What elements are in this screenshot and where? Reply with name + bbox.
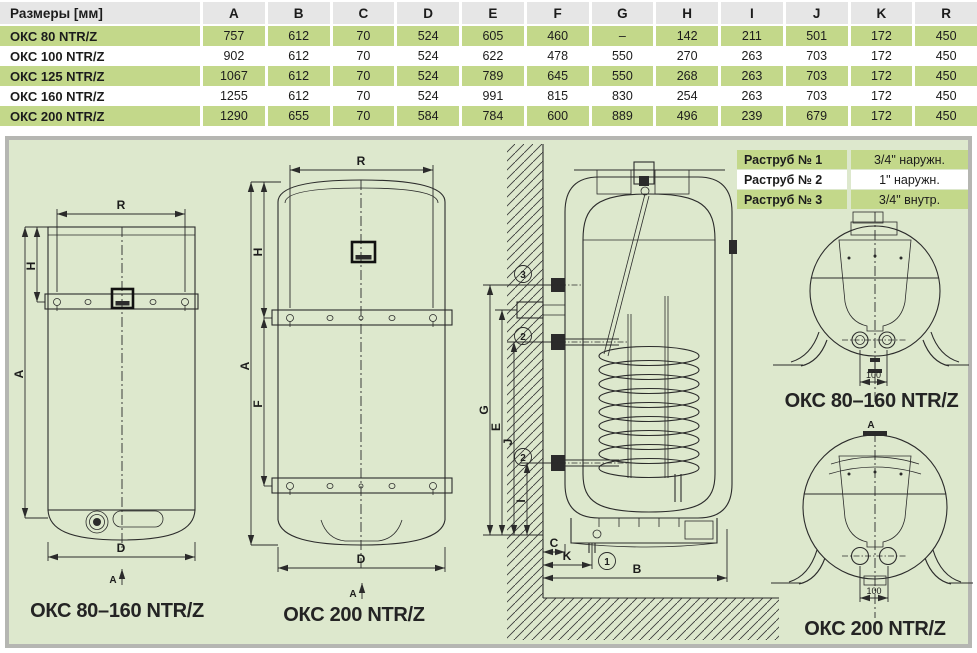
value-cell: 1255 (203, 86, 265, 106)
value-cell: – (592, 26, 654, 46)
svg-text:B: B (633, 562, 642, 576)
thermostat-cover (112, 289, 133, 308)
svg-text:100: 100 (866, 586, 881, 596)
svg-text:G: G (477, 405, 491, 414)
value-cell: 612 (268, 86, 330, 106)
svg-text:A: A (867, 420, 874, 431)
table-header-cell: J (786, 2, 848, 24)
fitting-row: Раструб № 1 3/4" наружн. (737, 150, 968, 169)
value-cell: 524 (397, 86, 459, 106)
table-row: ОКС 160 NTR/Z 1255 612 70 524 991 815 83… (0, 86, 977, 106)
value-cell: 550 (592, 46, 654, 66)
fitting-value: 1" наружн. (851, 170, 968, 189)
value-cell: 612 (268, 26, 330, 46)
callout-1: 1 (599, 553, 616, 570)
value-cell: 450 (915, 26, 977, 46)
cross-section-drawing: 3 2 2 1 G E (479, 144, 779, 644)
value-cell: 460 (527, 26, 589, 46)
dimension-R: R (290, 154, 433, 308)
table-row: ОКС 125 NTR/Z 1067 612 70 524 789 645 55… (0, 66, 977, 86)
value-cell: 789 (462, 66, 524, 86)
table-header-cell: I (721, 2, 783, 24)
model-cell: ОКС 125 NTR/Z (0, 66, 200, 86)
value-cell: 172 (851, 106, 913, 126)
diagram-panel: R A H D A ОКС 8 (5, 136, 972, 648)
datasheet-page: Размеры [мм] A B C D E F G H I J K R ОКС… (0, 0, 977, 653)
fitting-label: Раструб № 1 (737, 150, 847, 169)
value-cell: 450 (915, 86, 977, 106)
value-cell: 239 (721, 106, 783, 126)
value-cell: 612 (268, 66, 330, 86)
value-cell: 622 (462, 46, 524, 66)
svg-text:A: A (12, 369, 26, 378)
value-cell: 142 (656, 26, 718, 46)
value-cell: 1067 (203, 66, 265, 86)
value-cell: 703 (786, 46, 848, 66)
heat-exchanger-coil (599, 296, 699, 478)
value-cell: 263 (721, 46, 783, 66)
mounting-bracket-upper (272, 310, 452, 327)
value-cell: 600 (527, 106, 589, 126)
svg-text:R: R (117, 198, 126, 212)
svg-text:F: F (251, 400, 265, 407)
svg-text:A: A (238, 361, 252, 370)
table-header-cell: K (851, 2, 913, 24)
value-cell: 254 (656, 86, 718, 106)
table-row: ОКС 80 NTR/Z 757 612 70 524 605 460 – 14… (0, 26, 977, 46)
fitting-row: Раструб № 3 3/4" внутр. (737, 190, 968, 209)
value-cell: 172 (851, 86, 913, 106)
value-cell: 70 (333, 86, 395, 106)
electric-unit (571, 518, 717, 553)
fitting-value: 3/4" наружн. (851, 150, 968, 169)
svg-text:D: D (117, 541, 126, 555)
table-header-cell: D (397, 2, 459, 24)
value-cell: 645 (527, 66, 589, 86)
value-cell: 270 (656, 46, 718, 66)
value-cell: 172 (851, 66, 913, 86)
model-cell: ОКС 100 NTR/Z (0, 46, 200, 66)
table-header-cell: C (333, 2, 395, 24)
dimensions-table: Размеры [мм] A B C D E F G H I J K R ОКС… (0, 2, 977, 126)
svg-text:2: 2 (520, 453, 526, 464)
sensor-tube (604, 194, 649, 356)
value-cell: 450 (915, 66, 977, 86)
view-A-marker: A (349, 583, 362, 600)
tank-outline (48, 227, 195, 552)
dimension-F: F (251, 318, 272, 486)
value-cell: 815 (527, 86, 589, 106)
value-cell: 524 (397, 46, 459, 66)
value-cell: 550 (592, 66, 654, 86)
value-cell: 902 (203, 46, 265, 66)
table-header-cell: R (915, 2, 977, 24)
value-cell: 263 (721, 66, 783, 86)
value-cell: 501 (786, 26, 848, 46)
value-cell: 263 (721, 86, 783, 106)
drawing-caption: ОКС 80–160 NTR/Z (769, 390, 974, 413)
value-cell: 757 (203, 26, 265, 46)
fitting-value: 3/4" внутр. (851, 190, 968, 209)
value-cell: 524 (397, 26, 459, 46)
tank-outline (278, 180, 445, 568)
dimension-D: D (278, 547, 445, 572)
floor-hatch (543, 598, 779, 640)
value-cell: 172 (851, 46, 913, 66)
value-cell: 478 (527, 46, 589, 66)
svg-text:3: 3 (520, 270, 526, 281)
fitting-row: Раструб № 2 1" наружн. (737, 170, 968, 189)
svg-text:D: D (357, 552, 366, 566)
value-cell: 496 (656, 106, 718, 126)
value-cell: 655 (268, 106, 330, 126)
mounting-bracket-lower (272, 478, 452, 495)
table-header-cell: G (592, 2, 654, 24)
table-header-cell: Размеры [мм] (0, 2, 200, 24)
svg-text:I: I (514, 499, 528, 502)
table-row: ОКС 100 NTR/Z 902 612 70 524 622 478 550… (0, 46, 977, 66)
value-cell: 172 (851, 26, 913, 46)
svg-text:E: E (489, 423, 503, 431)
svg-text:H: H (24, 262, 38, 271)
dimension-H: H (251, 182, 272, 318)
front-view-small-drawing: R A H D A (13, 152, 231, 592)
table-row: ОКС 200 NTR/Z 1290 655 70 584 784 600 88… (0, 106, 977, 126)
view-A-marker: A (109, 569, 122, 586)
svg-text:A: A (109, 575, 116, 586)
svg-text:J: J (501, 439, 515, 446)
drawing-caption: ОКС 200 NTR/Z (244, 604, 464, 627)
table-header-cell: A (203, 2, 265, 24)
value-cell: 524 (397, 66, 459, 86)
dimension-D: D (48, 541, 195, 561)
wall-hatch (507, 144, 543, 640)
table-header-cell: E (462, 2, 524, 24)
fittings-table: Раструб № 1 3/4" наружн. Раструб № 2 1" … (737, 150, 968, 210)
value-cell: 991 (462, 86, 524, 106)
svg-text:A: A (349, 589, 356, 600)
value-cell: 70 (333, 66, 395, 86)
value-cell: 584 (397, 106, 459, 126)
svg-text:R: R (357, 154, 366, 168)
model-cell: ОКС 80 NTR/Z (0, 26, 200, 46)
value-cell: 450 (915, 106, 977, 126)
fitting-label: Раструб № 2 (737, 170, 847, 189)
value-cell: 70 (333, 106, 395, 126)
value-cell: 612 (268, 46, 330, 66)
value-cell: 784 (462, 106, 524, 126)
value-cell: 830 (592, 86, 654, 106)
thermostat-cover (352, 242, 375, 262)
drawing-caption: ОКС 80–160 NTR/Z (17, 600, 217, 623)
svg-text:C: C (550, 536, 559, 550)
value-cell: 605 (462, 26, 524, 46)
svg-text:1: 1 (604, 557, 610, 568)
svg-text:K: K (563, 549, 572, 563)
dimension-R: R (57, 198, 185, 292)
dimension-A: A (238, 182, 281, 545)
value-cell: 450 (915, 46, 977, 66)
value-cell: 268 (656, 66, 718, 86)
value-cell: 679 (786, 106, 848, 126)
value-cell: 703 (786, 66, 848, 86)
model-cell: ОКС 200 NTR/Z (0, 106, 200, 126)
table-header-cell: H (656, 2, 718, 24)
value-cell: 70 (333, 26, 395, 46)
bottom-view-200-drawing: A (769, 418, 974, 643)
value-cell: 211 (721, 26, 783, 46)
bottom-nozzles (842, 548, 907, 565)
drawing-caption: ОКС 200 NTR/Z (775, 618, 975, 641)
model-cell: ОКС 160 NTR/Z (0, 86, 200, 106)
svg-text:2: 2 (520, 332, 526, 343)
view-A-marker: A (867, 420, 874, 431)
value-cell: 703 (786, 86, 848, 106)
svg-text:100: 100 (866, 370, 881, 380)
value-cell: 1290 (203, 106, 265, 126)
value-cell: 889 (592, 106, 654, 126)
tank-insulation (565, 162, 737, 518)
svg-text:H: H (251, 248, 265, 257)
front-view-200-drawing: R A H F D (241, 148, 489, 613)
fitting-label: Раструб № 3 (737, 190, 847, 209)
value-cell: 70 (333, 46, 395, 66)
dimension-H: H (24, 227, 45, 302)
control-knob (86, 511, 163, 533)
table-header-row: Размеры [мм] A B C D E F G H I J K R (0, 2, 977, 24)
table-header-cell: B (268, 2, 330, 24)
table-header-cell: F (527, 2, 589, 24)
